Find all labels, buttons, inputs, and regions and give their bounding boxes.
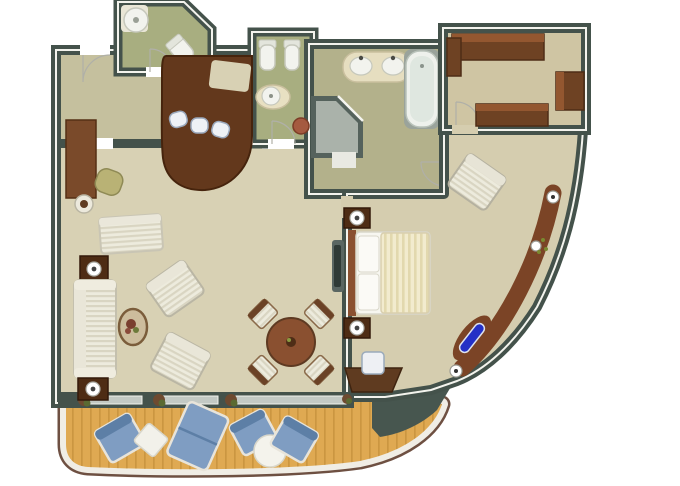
lamp-table bbox=[75, 195, 93, 213]
dressing-room bbox=[443, 28, 586, 134]
wardrobe-bottom bbox=[476, 104, 548, 126]
sofa bbox=[74, 280, 116, 378]
wardrobe-side bbox=[447, 38, 461, 76]
wc-basin bbox=[256, 85, 290, 109]
tv-console bbox=[332, 240, 344, 292]
lamp-cabinet bbox=[80, 256, 108, 282]
bar-pantry bbox=[162, 56, 252, 190]
wardrobe-top bbox=[452, 34, 544, 60]
bar-counter-inset bbox=[208, 60, 251, 93]
console-lamp bbox=[531, 241, 541, 251]
vanity-chair bbox=[362, 352, 384, 374]
bathtub bbox=[404, 49, 440, 129]
planter bbox=[342, 394, 352, 404]
lamp-cabinet bbox=[78, 378, 108, 400]
suite-floor-plan bbox=[0, 0, 680, 486]
nightstand-with-lamp bbox=[344, 318, 370, 338]
double-sink-vanity bbox=[343, 52, 411, 82]
writing-desk bbox=[66, 120, 96, 198]
headboard bbox=[348, 230, 356, 316]
double-bed bbox=[348, 230, 430, 316]
bar-stool bbox=[191, 118, 208, 133]
shower-mat bbox=[332, 152, 356, 168]
entry-door-opening bbox=[80, 45, 110, 55]
toilet bbox=[259, 40, 276, 70]
door-opening bbox=[452, 125, 478, 134]
dresser bbox=[556, 72, 584, 110]
duvet bbox=[381, 233, 429, 313]
floor-plan-canvas bbox=[0, 0, 680, 486]
bathroom bbox=[309, 44, 450, 194]
glass-door bbox=[236, 396, 346, 404]
pillow bbox=[358, 236, 379, 272]
bidet bbox=[284, 40, 300, 70]
pillow bbox=[358, 274, 379, 310]
coffee-table-with-plant bbox=[119, 309, 147, 345]
stool bbox=[293, 118, 309, 134]
nightstand-with-lamp bbox=[344, 208, 370, 228]
sink-drain bbox=[133, 17, 139, 23]
chaise-longue bbox=[99, 214, 163, 254]
